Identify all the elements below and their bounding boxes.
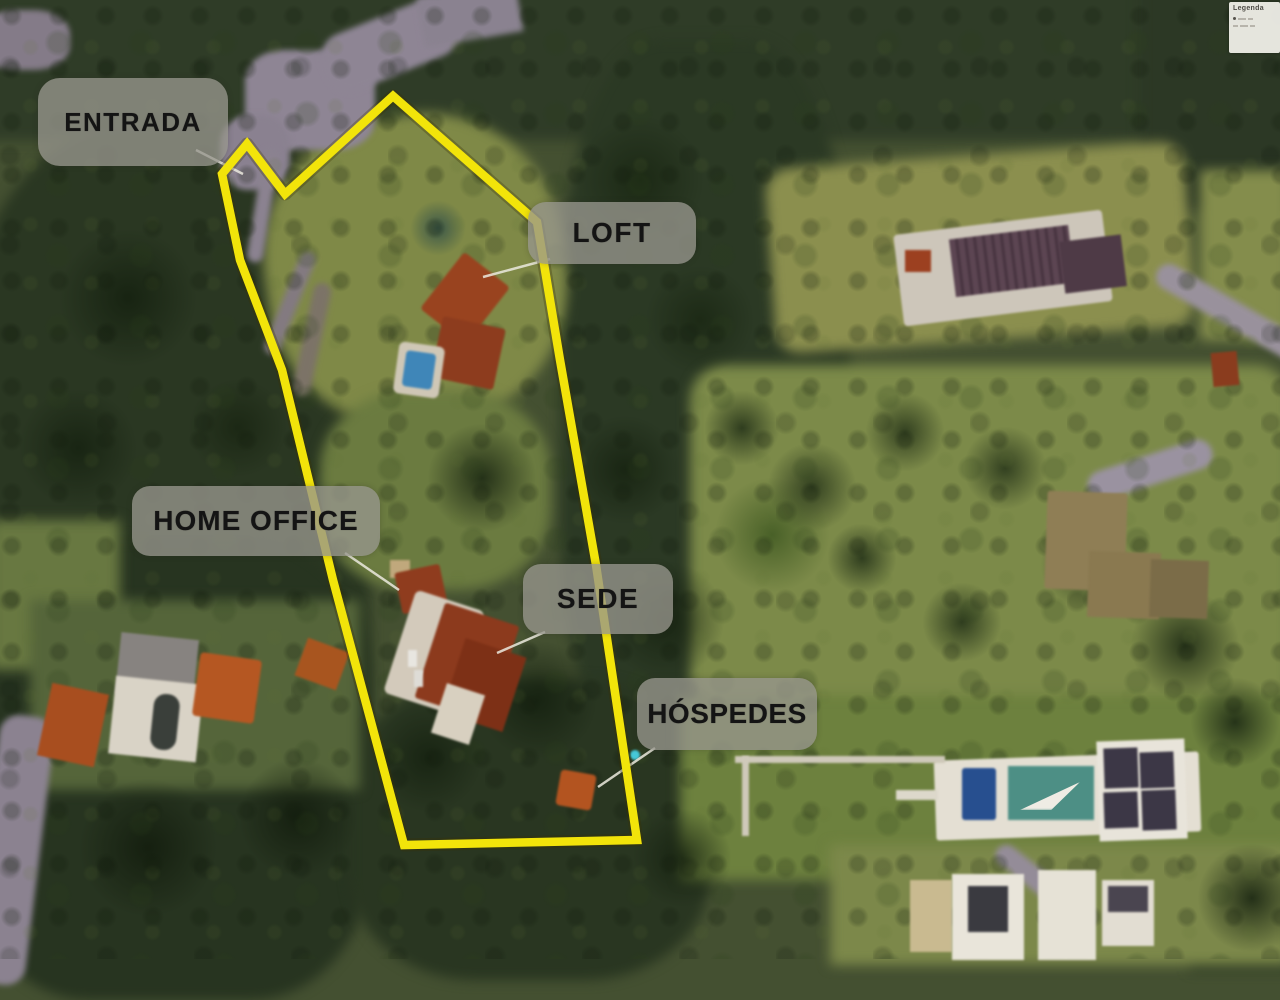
label-entrada: ENTRADA (38, 78, 228, 166)
label-sede-text: SEDE (557, 583, 639, 615)
legend-item (1233, 17, 1277, 20)
label-hospedes-text: HÓSPEDES (647, 698, 807, 730)
legend-title: Legenda (1233, 5, 1277, 12)
label-entrada-text: ENTRADA (64, 107, 202, 138)
label-loft: LOFT (528, 202, 696, 264)
building (1038, 870, 1096, 960)
label-sede: SEDE (523, 564, 673, 634)
label-home-office: HOME OFFICE (132, 486, 380, 556)
aerial-photo: ENTRADA LOFT HOME OFFICE SEDE HÓSPEDES L… (0, 0, 1280, 959)
legend-dot (1233, 17, 1236, 20)
legend: Legenda (1229, 2, 1280, 53)
small-round-pool (630, 750, 640, 760)
label-loft-text: LOFT (572, 217, 651, 249)
building (910, 880, 952, 952)
loft-pool (402, 350, 437, 390)
orange-roof-house (192, 652, 262, 724)
modern-house-pool (962, 768, 996, 820)
label-hospedes: HÓSPEDES (637, 678, 817, 750)
label-home-office-text: HOME OFFICE (153, 505, 358, 537)
modern-house-lap-pool (1008, 766, 1094, 820)
legend-item (1233, 25, 1277, 27)
guest-house (555, 769, 597, 811)
